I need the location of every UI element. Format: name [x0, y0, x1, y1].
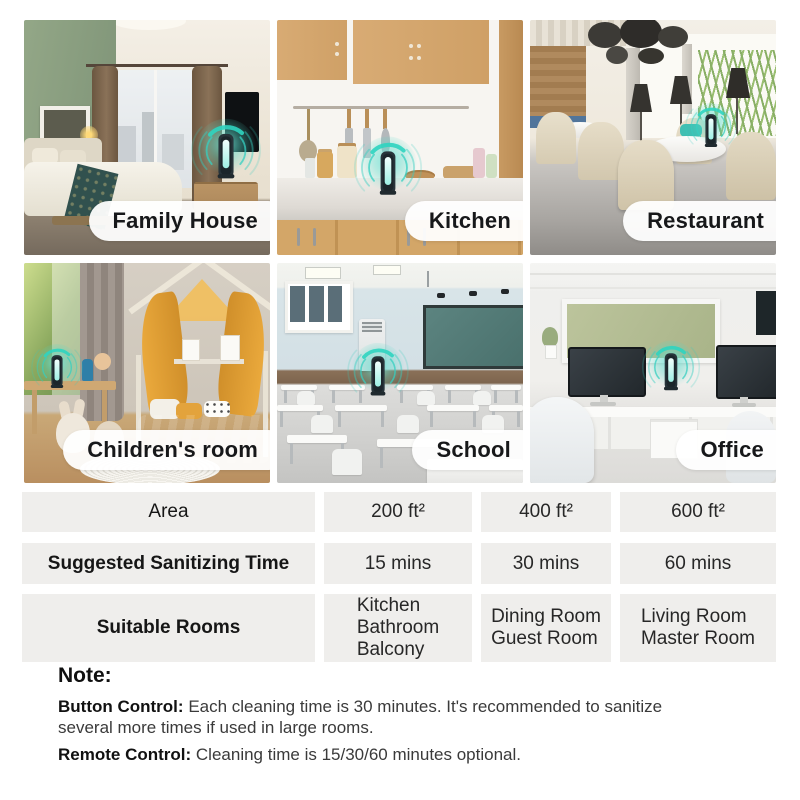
tv	[225, 92, 259, 152]
ladle-handle	[307, 109, 310, 143]
picture-card	[182, 339, 200, 361]
jar	[317, 152, 333, 178]
window-with-trees	[24, 263, 86, 395]
jar	[337, 146, 357, 178]
note-title: Note:	[58, 664, 738, 688]
hanging-lamp	[427, 271, 429, 287]
photo-family-house: Family House	[24, 20, 270, 255]
chair	[311, 415, 333, 433]
monitor	[568, 347, 646, 397]
wicker-pendant-lamp	[606, 46, 628, 64]
table-row-area: Area 200 ft² 400 ft² 600 ft²	[22, 492, 776, 532]
lamp-stand	[736, 98, 738, 134]
wall-screen	[756, 291, 776, 335]
desk	[277, 405, 323, 411]
chair	[417, 391, 435, 405]
table-cell-time-30: 30 mins	[481, 543, 611, 584]
plant	[542, 327, 558, 347]
desk	[397, 385, 433, 390]
jar	[486, 154, 497, 178]
photo-office: Office	[530, 263, 776, 483]
spotlight	[437, 293, 445, 298]
note-section: Note: Button Control: Each cleaning time…	[58, 664, 738, 771]
room-label: Office	[700, 437, 764, 463]
note-button-control: Button Control: Each cleaning time is 30…	[58, 696, 718, 738]
ceiling-light-panel	[305, 267, 341, 279]
utensil-rail	[293, 106, 469, 109]
wicker-pendant-lamp	[638, 48, 664, 64]
chair	[473, 391, 491, 405]
chalkboard	[423, 305, 523, 369]
desk	[489, 405, 523, 411]
monitor	[716, 345, 776, 399]
room-label-pill: Children's room	[63, 430, 270, 470]
bottle	[82, 359, 93, 381]
upper-cabinet	[277, 20, 347, 80]
room-label-pill: Office	[676, 430, 776, 470]
spotlight	[501, 289, 509, 294]
desk	[287, 435, 347, 443]
ac-unit	[359, 319, 385, 371]
desk	[329, 385, 365, 390]
monitor-base	[590, 402, 616, 406]
utensil	[365, 109, 369, 129]
upper-cabinet	[353, 20, 489, 84]
plush-toy	[94, 353, 111, 370]
room-label-pill: School	[412, 430, 523, 470]
ceiling-light	[112, 20, 186, 30]
table-cell-area-600: 600 ft²	[620, 492, 776, 532]
chair	[397, 415, 419, 433]
photo-school: School	[277, 263, 523, 483]
wood-slat-wall	[530, 46, 586, 118]
table-cell-rooms-large: Living Room Master Room	[620, 594, 776, 662]
jar	[473, 148, 485, 178]
table-cell-time-60: 60 mins	[620, 543, 776, 584]
note-remote-control: Remote Control: Cleaning time is 15/30/6…	[58, 744, 718, 765]
spatula	[363, 128, 371, 158]
room-label: Children's room	[87, 437, 258, 463]
desk-leg	[32, 390, 37, 434]
skimmer	[381, 128, 390, 154]
utensil	[383, 109, 387, 129]
chair	[297, 391, 315, 405]
ceiling-line	[530, 287, 776, 289]
room-label-pill: Restaurant	[623, 201, 776, 241]
desk	[335, 405, 387, 411]
desk	[445, 385, 481, 390]
desk-top	[24, 381, 116, 390]
table-cell-rooms-label: Suitable Rooms	[22, 594, 315, 662]
spec-table: Area 200 ft² 400 ft² 600 ft² Suggested S…	[22, 492, 776, 662]
desk	[491, 385, 521, 390]
desk	[281, 385, 317, 390]
photo-childrens-room: Children's room	[24, 263, 270, 483]
wicker-pendant-lamp	[588, 22, 622, 48]
photo-kitchen: Kitchen	[277, 20, 523, 255]
armchair	[536, 112, 576, 164]
ceiling-light-panel	[373, 265, 401, 275]
wicker-pendant-lamp	[658, 26, 688, 48]
office-chair	[530, 397, 594, 483]
room-label-pill: Family House	[89, 201, 270, 241]
table-row-sanitizing-time: Suggested Sanitizing Time 15 mins 30 min…	[22, 543, 776, 584]
room-label: Kitchen	[429, 208, 511, 234]
room-label-pill: Kitchen	[405, 201, 523, 241]
table-cell-area-400: 400 ft²	[481, 492, 611, 532]
classroom-window	[285, 281, 353, 333]
ceiling-line	[530, 273, 776, 275]
table-cell-rooms-medium: Dining Room Guest Room	[481, 594, 611, 662]
table-cell-time-label: Suggested Sanitizing Time	[22, 543, 315, 584]
table-row-suitable-rooms: Suitable Rooms Kitchen Bathroom Balcony …	[22, 594, 776, 662]
product-infographic-page: { "photos": [ {"label": "Family House"},…	[0, 0, 800, 800]
desk	[427, 405, 479, 411]
table-cell-rooms-small: Kitchen Bathroom Balcony	[324, 594, 472, 662]
utensil	[347, 109, 351, 129]
picture-card	[220, 335, 240, 361]
armchair	[618, 140, 674, 210]
spotlight	[469, 291, 477, 296]
table-cell-time-15: 15 mins	[324, 543, 472, 584]
table-cell-area-label: Area	[22, 492, 315, 532]
table-cell-area-200: 200 ft²	[324, 492, 472, 532]
room-label: Restaurant	[647, 208, 764, 234]
glass	[305, 158, 315, 178]
chair	[332, 449, 362, 475]
vase	[545, 345, 557, 359]
photo-restaurant: Restaurant	[530, 20, 776, 255]
armchair	[726, 132, 776, 200]
room-label: School	[436, 437, 511, 463]
room-label: Family House	[113, 208, 258, 234]
